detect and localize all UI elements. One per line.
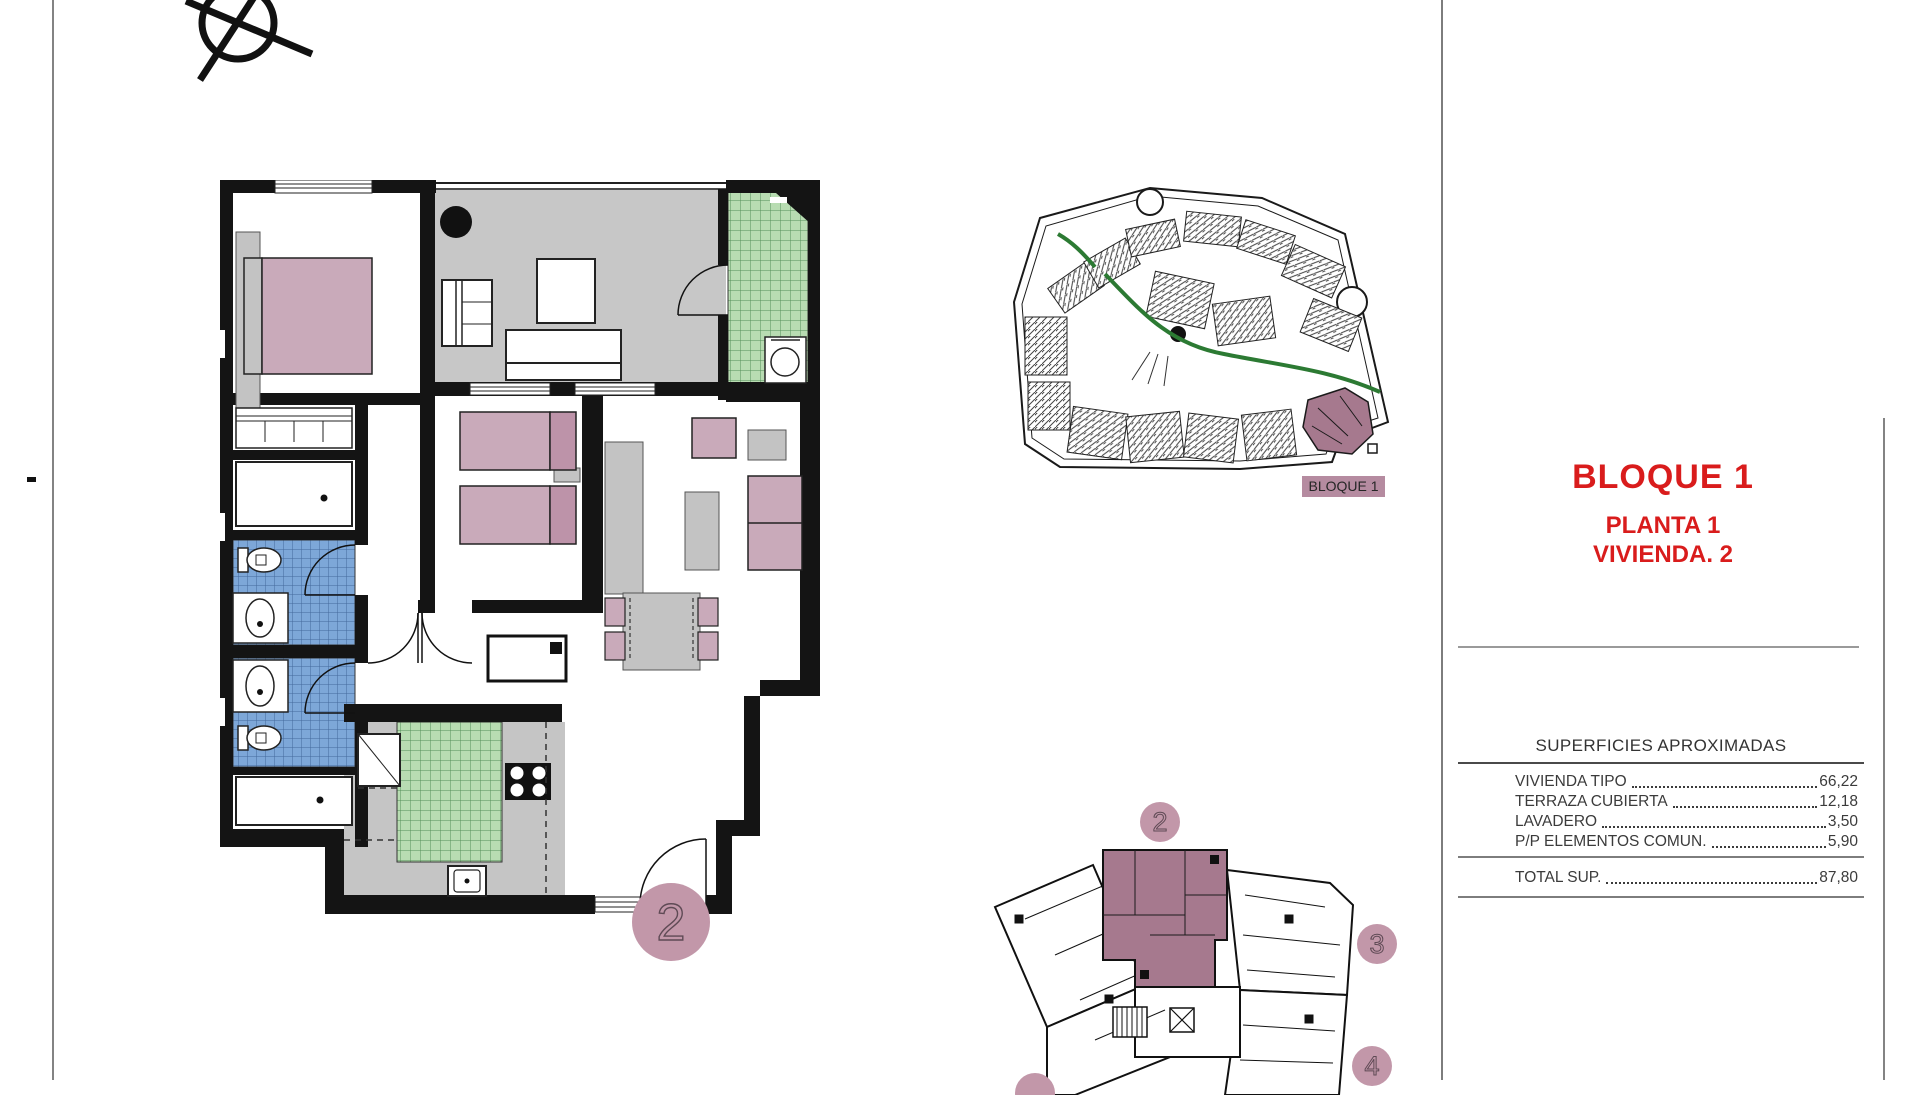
shelf-unit: [442, 280, 492, 346]
shower-room-b: [236, 777, 352, 825]
end-table: [748, 430, 786, 460]
elevator: [1170, 1008, 1194, 1032]
unit-label: VIVIENDA. 2: [1443, 540, 1883, 569]
bed-headboard: [244, 258, 262, 374]
dot-leader: [1602, 826, 1826, 828]
shower-room-a: [236, 462, 352, 526]
area-value: 12,18: [1819, 792, 1858, 812]
table-row: VIVIENDA TIPO 66,22: [1515, 772, 1858, 792]
plan-sheet: { "sheet": { "compass_icon": "north-arro…: [0, 0, 1920, 1080]
title-divider-line: [1458, 646, 1859, 648]
living-room-furniture: [605, 418, 802, 594]
apartment-floor-plan: 2: [220, 180, 820, 980]
area-value: 66,22: [1819, 772, 1858, 792]
armchair: [692, 418, 736, 458]
dot-leader: [1632, 786, 1818, 788]
toilet-icon: [247, 548, 281, 572]
area-label: TERRAZA CUBIERTA: [1515, 792, 1668, 812]
area-label: LAVADERO: [1515, 812, 1597, 832]
table-row: P/P ELEMENTOS COMUN. 5,90: [1515, 832, 1858, 852]
sink-icon: [246, 666, 274, 706]
hall-cabinet: [488, 636, 566, 681]
total-value: 87,80: [1819, 868, 1858, 888]
dining-set: [605, 593, 718, 670]
double-bed: [262, 258, 372, 374]
table-row: LAVADERO 3,50: [1515, 812, 1858, 832]
single-bed-2: [460, 486, 576, 544]
area-value: 3,50: [1828, 812, 1858, 832]
terrace-bench: [506, 330, 621, 380]
planter-icon: [440, 206, 472, 238]
total-label: TOTAL SUP.: [1515, 868, 1601, 888]
key-plan: 2 3 4: [985, 795, 1405, 1095]
stove: [505, 763, 551, 800]
north-arrow-icon: [170, 0, 320, 88]
unit-badge-digit: 2: [657, 894, 686, 952]
sink-icon: [246, 599, 274, 637]
block-title: BLOQUE 1: [1443, 458, 1883, 497]
bedroom2-furniture: [460, 412, 580, 544]
single-bed-1: [460, 412, 576, 470]
badge-4: 4: [1364, 1051, 1379, 1081]
dot-leader: [1712, 846, 1826, 848]
areas-table-title: SUPERFICIES APROXIMADAS: [1458, 736, 1864, 756]
table-row: TERRAZA CUBIERTA 12,18: [1515, 792, 1858, 812]
sheet-left-border: [52, 0, 54, 1080]
hall-closet: [236, 408, 352, 448]
terrace-table: [537, 259, 595, 323]
bathroom2-fixtures: [233, 660, 288, 750]
dot-leader: [1606, 882, 1817, 884]
sheet-right-border: [1883, 418, 1885, 1080]
dot-leader: [1673, 806, 1817, 808]
title-block: BLOQUE 1 PLANTA 1 VIVIENDA. 2: [1443, 458, 1883, 569]
dining-table: [623, 593, 700, 670]
stairs: [1113, 1007, 1147, 1037]
washing-machine: [765, 337, 806, 383]
floor-label: PLANTA 1: [1443, 511, 1883, 540]
margin-tick: [27, 477, 36, 482]
bathroom1-fixtures: [233, 548, 288, 643]
areas-table: SUPERFICIES APROXIMADAS VIVIENDA TIPO 66…: [1458, 736, 1864, 898]
area-value: 5,90: [1828, 832, 1858, 852]
badge-3: 3: [1369, 929, 1384, 959]
area-label: P/P ELEMENTOS COMUN.: [1515, 832, 1707, 852]
site-plan: [1000, 182, 1400, 502]
area-label: VIVIENDA TIPO: [1515, 772, 1627, 792]
site-plan-block-label: BLOQUE 1: [1302, 476, 1385, 497]
badge-2: 2: [1152, 807, 1167, 837]
toilet-icon: [247, 726, 281, 750]
table-total-row: TOTAL SUP. 87,80: [1515, 868, 1858, 888]
table-rule-bottom: [1458, 896, 1864, 898]
coffee-table: [685, 492, 719, 570]
unit-number-badge: 2: [632, 883, 710, 961]
sideboard: [605, 442, 643, 594]
